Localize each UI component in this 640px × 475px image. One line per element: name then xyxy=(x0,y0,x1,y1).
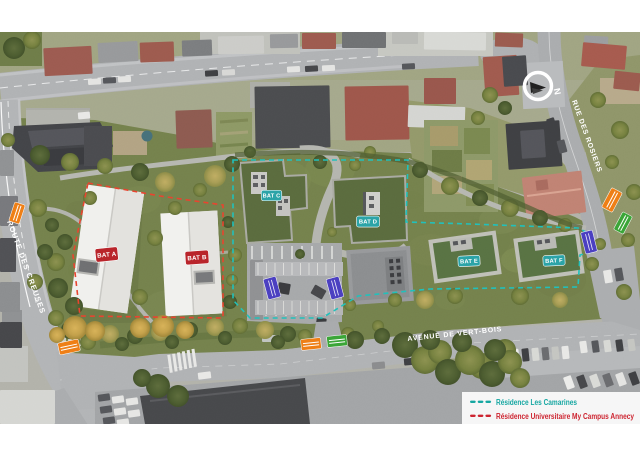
svg-text:Résidence Universitaire My Cam: Résidence Universitaire My Campus Annecy xyxy=(496,412,634,421)
svg-text:Résidence Les Camarines: Résidence Les Camarines xyxy=(496,398,577,407)
